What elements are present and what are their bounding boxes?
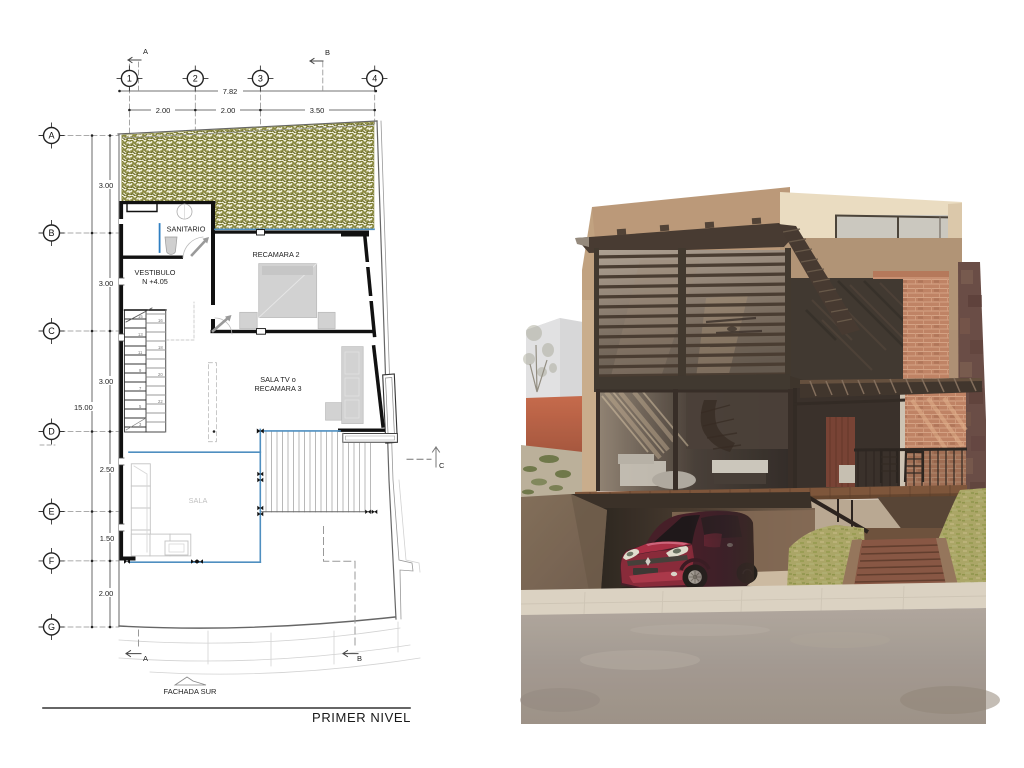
svg-text:E: E (48, 507, 54, 517)
svg-text:22: 22 (158, 399, 163, 404)
svg-text:FACHADA SUR: FACHADA SUR (164, 687, 218, 696)
svg-text:3.00: 3.00 (99, 181, 114, 190)
svg-text:15: 15 (138, 314, 143, 319)
svg-text:N +4.05: N +4.05 (142, 277, 168, 286)
svg-text:2: 2 (193, 74, 198, 84)
svg-text:RECAMARA 3: RECAMARA 3 (254, 384, 301, 393)
svg-text:A: A (143, 654, 148, 663)
svg-text:F: F (49, 556, 55, 566)
svg-text:2.00: 2.00 (156, 106, 171, 115)
svg-text:1: 1 (127, 74, 132, 84)
svg-text:G: G (48, 622, 55, 632)
svg-text:3.50: 3.50 (310, 106, 325, 115)
svg-text:SALA: SALA (189, 496, 208, 505)
svg-text:RECAMARA 2: RECAMARA 2 (252, 250, 299, 259)
svg-text:16: 16 (158, 318, 163, 323)
svg-text:B: B (48, 228, 54, 238)
svg-text:18: 18 (158, 345, 163, 350)
svg-text:2.50: 2.50 (100, 465, 115, 474)
svg-text:B: B (357, 654, 362, 663)
svg-text:2.00: 2.00 (99, 589, 114, 598)
svg-text:SANITARIO: SANITARIO (167, 225, 206, 234)
svg-text:B: B (325, 48, 330, 57)
svg-text:3.00: 3.00 (99, 377, 114, 386)
svg-text:15.00: 15.00 (74, 403, 93, 412)
svg-text:7.82: 7.82 (223, 87, 238, 96)
svg-text:SALA TV o: SALA TV o (260, 375, 296, 384)
svg-text:A: A (143, 47, 148, 56)
svg-text:4: 4 (372, 74, 377, 84)
svg-text:13: 13 (138, 332, 143, 337)
svg-text:2.00: 2.00 (221, 106, 236, 115)
svg-text:3.00: 3.00 (99, 279, 114, 288)
svg-text:PRIMER NIVEL: PRIMER NIVEL (312, 710, 411, 725)
svg-text:D: D (48, 427, 55, 437)
svg-text:3: 3 (258, 74, 263, 84)
svg-text:11: 11 (138, 350, 143, 355)
svg-text:1.50: 1.50 (100, 534, 115, 543)
svg-text:A: A (48, 131, 54, 141)
svg-text:VESTIBULO: VESTIBULO (135, 268, 176, 277)
svg-text:20: 20 (158, 372, 163, 377)
svg-text:C: C (48, 326, 55, 336)
svg-text:C: C (439, 461, 445, 470)
